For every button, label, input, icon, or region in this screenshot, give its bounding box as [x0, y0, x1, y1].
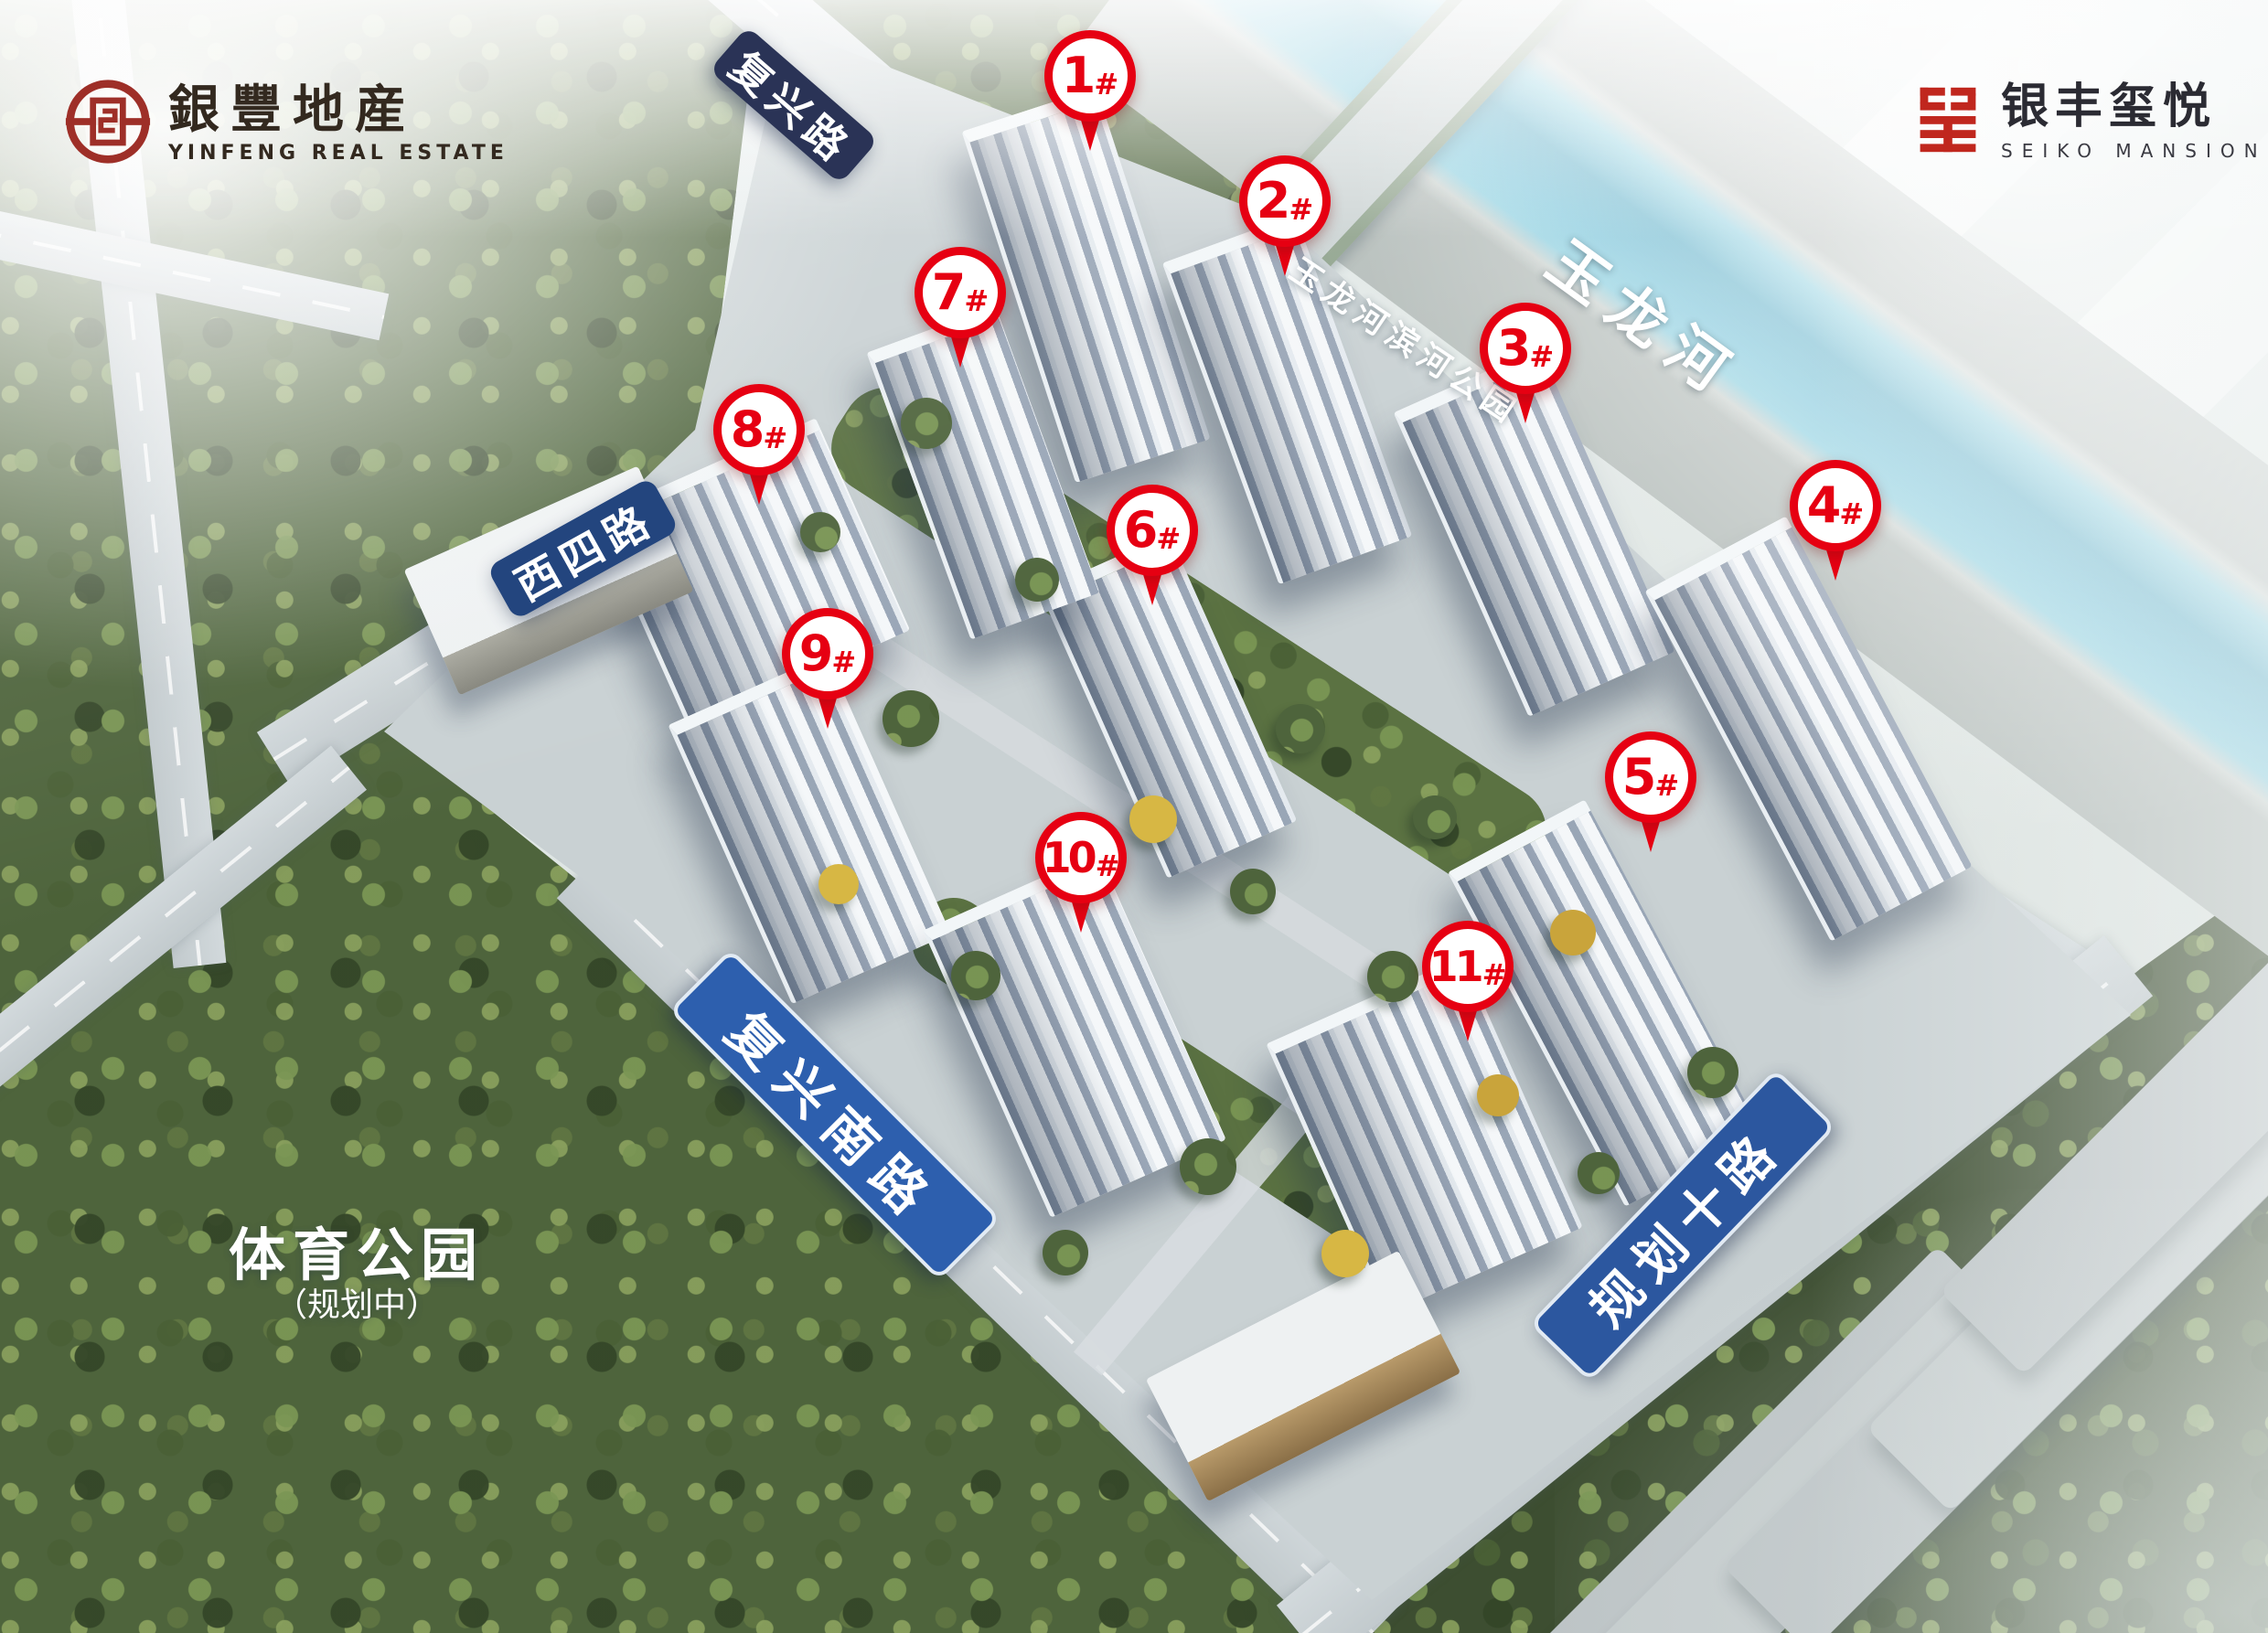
pin-circle: 10#: [1035, 812, 1127, 903]
tree-yellow: [818, 864, 859, 904]
pin-number: 8: [731, 405, 762, 454]
pin-hash: #: [1094, 69, 1118, 99]
tree-yellow: [1321, 1230, 1369, 1277]
tree: [1230, 869, 1276, 914]
building-marker-1[interactable]: 1#: [1040, 30, 1140, 153]
tree: [883, 690, 939, 747]
pin-hash: #: [1482, 960, 1507, 989]
pin-hash: #: [1654, 771, 1679, 800]
tree: [800, 512, 840, 552]
building-marker-10[interactable]: 10#: [1031, 812, 1131, 934]
developer-logo: 銀豐地産 YINFENG REAL ESTATE: [64, 78, 508, 169]
pin-circle: 11#: [1422, 921, 1514, 1012]
pin-circle: 9#: [782, 608, 873, 699]
project-logo: 银丰玺悦 SEIKO MANSION: [1911, 80, 2267, 162]
tree-yellow: [1477, 1074, 1519, 1116]
tree: [1043, 1230, 1088, 1275]
project-name-en: SEIKO MANSION: [2001, 140, 2267, 162]
tree: [1687, 1047, 1738, 1098]
tree: [951, 951, 1000, 1000]
developer-name-en: YINFENG REAL ESTATE: [168, 142, 508, 165]
pin-hash: #: [831, 647, 856, 677]
building-marker-9[interactable]: 9#: [777, 608, 878, 731]
developer-name-cn: 銀豐地産: [168, 82, 508, 139]
building-marker-6[interactable]: 6#: [1102, 485, 1203, 607]
tree: [1180, 1138, 1236, 1195]
pin-hash: #: [1839, 499, 1864, 528]
tree-yellow: [1550, 910, 1596, 955]
tree: [1578, 1152, 1620, 1194]
pin-circle: 4#: [1790, 460, 1881, 551]
pin-circle: 5#: [1605, 731, 1696, 823]
pin-number: 11: [1429, 945, 1481, 987]
tree: [1015, 558, 1059, 602]
pin-number: 7: [932, 268, 963, 317]
building-marker-11[interactable]: 11#: [1417, 921, 1518, 1043]
building-marker-2[interactable]: 2#: [1235, 155, 1335, 278]
pin-circle: 1#: [1044, 30, 1136, 122]
pin-circle: 7#: [915, 247, 1006, 338]
tree-yellow: [1129, 795, 1177, 843]
project-name-cn: 银丰玺悦: [2001, 80, 2267, 133]
masterplan-aerial-view: 玉龙河 玉龙河滨河公园 体育公园 （规划中） 复兴路 西四路 复兴南路 规划十路…: [0, 0, 2268, 1633]
pin-hash: #: [964, 286, 989, 315]
pin-hash: #: [1289, 195, 1313, 224]
building-marker-3[interactable]: 3#: [1475, 303, 1576, 425]
pin-number: 1: [1062, 51, 1093, 101]
tree: [901, 398, 952, 449]
pin-number: 2: [1257, 176, 1288, 226]
pin-number: 4: [1807, 481, 1838, 530]
tree: [1413, 795, 1457, 839]
pin-circle: 3#: [1480, 303, 1571, 394]
pin-circle: 2#: [1239, 155, 1331, 247]
pin-number: 10: [1043, 837, 1094, 879]
developer-seal-icon: [64, 78, 152, 169]
project-mark-icon: [1911, 83, 1984, 160]
sports-park-status-label: （规划中）: [210, 1278, 503, 1326]
building-marker-7[interactable]: 7#: [910, 247, 1011, 369]
pin-number: 9: [799, 629, 830, 678]
pin-circle: 8#: [713, 384, 805, 475]
pin-number: 6: [1124, 506, 1155, 555]
pin-hash: #: [1096, 851, 1120, 881]
tree: [1276, 704, 1325, 753]
pin-number: 5: [1622, 752, 1653, 802]
pin-hash: #: [1529, 342, 1554, 371]
pin-number: 3: [1497, 324, 1528, 373]
building-marker-4[interactable]: 4#: [1785, 460, 1886, 582]
pin-hash: #: [1156, 524, 1181, 553]
tree: [1367, 951, 1418, 1002]
pin-hash: #: [763, 423, 787, 453]
building-marker-8[interactable]: 8#: [709, 384, 809, 507]
pin-circle: 6#: [1107, 485, 1198, 576]
building-marker-5[interactable]: 5#: [1600, 731, 1701, 854]
